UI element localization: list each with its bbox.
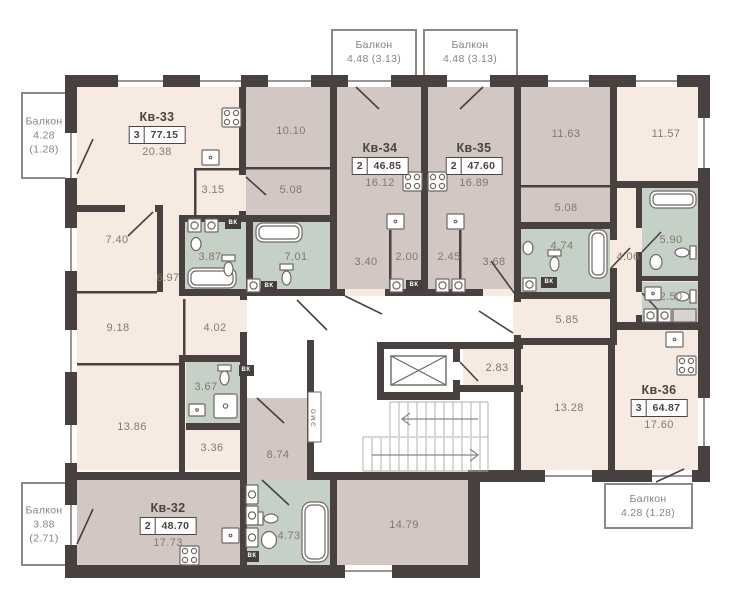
room-count: 2 [353, 158, 368, 174]
shower-icon [214, 394, 237, 418]
vk-shaft-label: ВК [543, 278, 556, 286]
floor-plan: Кв-33 3 77.15 20.38 Кв-34 2 46.85 16.12 … [0, 0, 750, 605]
room-area-label: 11.63 [552, 128, 581, 140]
balcony-label-bottom-right: Балкон 4.28 (1.28) [621, 492, 675, 520]
washing-machine-icon [436, 279, 449, 292]
apartment-label-kv34: Кв-34 2 46.85 16.12 [352, 141, 409, 189]
sink-icon [447, 214, 464, 229]
balcony-area: 4.48 (3.13) [443, 52, 497, 66]
sink-icon [222, 528, 239, 543]
bathtub-icon [589, 230, 607, 278]
apartment-name: Кв-36 [631, 383, 688, 397]
apartment-label-kv32: Кв-32 2 48.70 17.73 [140, 501, 197, 549]
washing-machine-icon [246, 528, 258, 547]
balcony-title: Балкон [443, 38, 497, 52]
apartment-badge: 2 48.70 [140, 517, 197, 535]
living-area: 17.60 [631, 419, 688, 431]
room-area-label: 7.40 [105, 234, 128, 246]
stove-icon [180, 546, 199, 565]
total-area: 47.60 [462, 158, 502, 174]
balcony-label-top-1: Балкон 4.48 (3.13) [347, 38, 401, 66]
elevator-shaft [384, 349, 453, 392]
total-area: 46.85 [368, 158, 408, 174]
balcony-area: 4.48 (3.13) [347, 52, 401, 66]
washing-machine-icon [246, 506, 258, 525]
apartment-name: Кв-33 [129, 110, 186, 124]
room-area-label: 11.57 [652, 128, 681, 140]
stove-icon [677, 356, 696, 375]
washing-machine-icon [658, 309, 671, 322]
apartment-label-kv35: Кв-35 2 47.60 16.89 [446, 141, 503, 189]
balcony-area: 3.88 [25, 518, 62, 532]
room-area-label: 9.18 [106, 322, 129, 334]
balcony-label-top-left: Балкон 4.28 (1.28) [25, 115, 62, 158]
washing-machine-icon [644, 309, 657, 322]
washing-machine-icon [390, 279, 403, 292]
room-area-label: 13.86 [117, 421, 147, 433]
vk-shaft-label: ВК [263, 282, 276, 290]
room-area-label: 5.90 [659, 234, 682, 246]
apartment-label-kv36: Кв-36 3 64.87 17.60 [631, 383, 688, 431]
room-area-label: 4.06 [616, 251, 639, 263]
vk-shaft-label: ВК [240, 366, 253, 374]
washbasin-icon [650, 255, 662, 270]
room-area-label: 14.79 [389, 519, 419, 531]
room-area-label: 6.97 [156, 272, 179, 284]
room-area-label: 7.01 [284, 251, 307, 263]
apartment-name: Кв-32 [140, 501, 197, 515]
room-area-label: 3.36 [200, 442, 223, 454]
balcony-title: Балкон [621, 492, 675, 506]
washing-machine-icon [247, 279, 260, 292]
emo-shaft-label: ЭМО [311, 407, 318, 427]
room-area-label: 8.74 [266, 449, 289, 461]
balcony-label-bottom-left: Балкон 3.88 (2.71) [25, 504, 62, 547]
apartment-badge: 2 47.60 [446, 157, 503, 175]
room-count: 2 [141, 518, 156, 534]
apartment-badge: 3 64.87 [631, 399, 688, 417]
balcony-title: Балкон [25, 504, 62, 518]
balcony-area-reduced: (1.28) [25, 143, 62, 157]
washing-machine-icon [205, 219, 218, 232]
balcony-title: Балкон [25, 115, 62, 129]
bathtub-icon [256, 223, 302, 242]
washbasin-icon [191, 238, 201, 251]
stove-icon [428, 172, 447, 191]
sink-icon [666, 332, 683, 347]
apartment-name: Кв-34 [352, 141, 409, 155]
room-area-label: 3.15 [201, 184, 224, 196]
room-area-label: 4.02 [203, 322, 226, 334]
room-area-label: 3.40 [354, 256, 377, 268]
sink-icon [202, 150, 219, 165]
room-area-label: 3.68 [482, 256, 505, 268]
living-area: 20.38 [129, 146, 186, 158]
room-area-label: 13.28 [554, 402, 584, 414]
total-area: 48.70 [156, 518, 196, 534]
living-area: 16.89 [446, 177, 503, 189]
room-count: 3 [632, 400, 647, 416]
balcony-area-reduced: (2.71) [25, 532, 62, 546]
apartment-name: Кв-35 [446, 141, 503, 155]
balcony-area: 4.28 (1.28) [621, 506, 675, 520]
apartment-badge: 3 77.15 [129, 126, 186, 144]
washing-machine-icon [523, 278, 536, 291]
apartment-label-kv33: Кв-33 3 77.15 20.38 [129, 110, 186, 158]
room-area-label: 3.87 [198, 251, 221, 263]
sink-icon [387, 214, 404, 229]
room-count: 2 [447, 158, 462, 174]
washbasin-icon [262, 532, 277, 549]
room-area-label: 10.10 [276, 125, 306, 137]
room-area-label: 4.73 [277, 530, 300, 542]
room-area-label: 2.00 [395, 251, 418, 263]
total-area: 64.87 [647, 400, 687, 416]
living-area: 17.73 [140, 537, 197, 549]
washing-machine-icon [452, 279, 465, 292]
washbasin-icon [523, 242, 533, 255]
vk-shaft-label: ВК [227, 219, 240, 227]
vk-shaft-label: ВК [246, 552, 259, 560]
room-area-label: 5.85 [555, 314, 578, 326]
apartment-badge: 2 46.85 [352, 157, 409, 175]
room-area-label: 2.83 [485, 362, 508, 374]
room-area-label: 2.45 [437, 251, 460, 263]
room-area-label: 2.50 [659, 291, 682, 303]
total-area: 77.15 [145, 127, 185, 143]
bathtub-icon [650, 191, 696, 208]
balcony-label-top-2: Балкон 4.48 (3.13) [443, 38, 497, 66]
living-area: 16.12 [352, 177, 409, 189]
balcony-area: 4.28 [25, 129, 62, 143]
washing-machine-icon [188, 219, 201, 232]
washbasin-icon [189, 404, 205, 416]
room-count: 3 [130, 127, 145, 143]
room-area-label: 3.67 [194, 381, 217, 393]
vk-shaft-label: ВК [408, 281, 421, 289]
balcony-title: Балкон [347, 38, 401, 52]
room-area-label: 5.08 [554, 202, 577, 214]
counter [673, 309, 696, 322]
stove-icon [222, 108, 241, 127]
room-area-label: 5.08 [279, 184, 302, 196]
room-area-label: 4.74 [550, 240, 573, 252]
bathtub-icon [302, 502, 328, 562]
washing-machine-icon [246, 485, 258, 504]
